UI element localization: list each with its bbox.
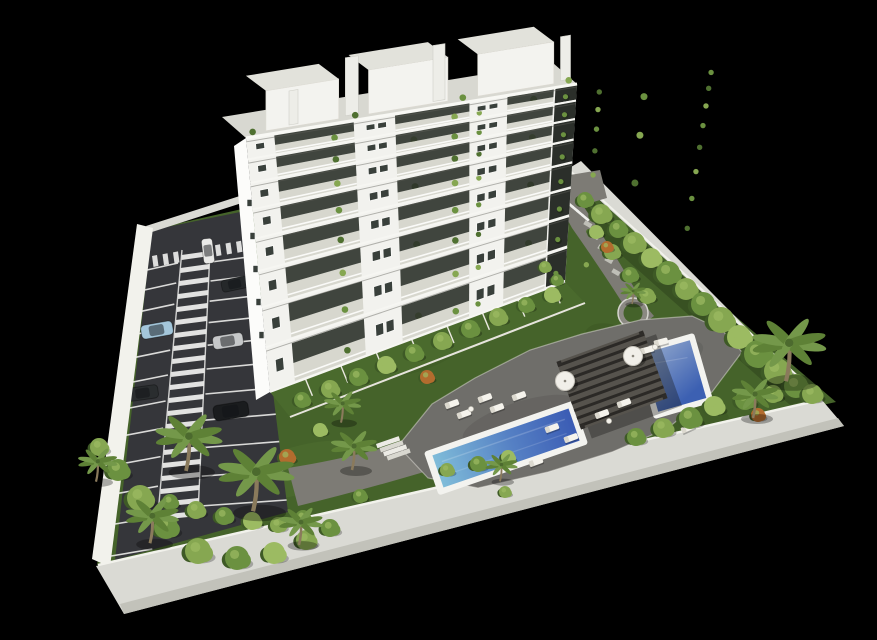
balcony-plant bbox=[595, 107, 600, 112]
palm-shadow bbox=[86, 478, 113, 487]
window bbox=[489, 121, 498, 128]
palm-shadow bbox=[331, 419, 357, 427]
window bbox=[477, 105, 486, 112]
palm-shadow bbox=[492, 479, 514, 486]
window bbox=[384, 281, 392, 294]
window bbox=[378, 122, 387, 129]
chimney bbox=[561, 35, 571, 81]
balcony-plant bbox=[640, 93, 647, 100]
balcony-plant bbox=[476, 265, 481, 270]
window bbox=[477, 124, 486, 131]
bush-highlight bbox=[547, 290, 553, 296]
window bbox=[250, 232, 255, 239]
balcony-plant bbox=[339, 270, 346, 277]
window bbox=[489, 142, 498, 150]
bush-highlight bbox=[356, 491, 361, 496]
balcony-plant bbox=[452, 155, 459, 162]
bush-highlight bbox=[521, 300, 527, 306]
bush-highlight bbox=[230, 550, 239, 559]
bush-highlight bbox=[625, 270, 631, 276]
balcony-plant bbox=[555, 237, 560, 242]
window bbox=[488, 165, 496, 174]
window bbox=[488, 190, 496, 200]
window bbox=[380, 164, 389, 173]
balcony-plant bbox=[476, 202, 481, 207]
balcony-plant bbox=[560, 154, 565, 159]
bush-highlight bbox=[680, 282, 688, 290]
bush-highlight bbox=[631, 431, 638, 438]
balcony-plant bbox=[700, 123, 705, 128]
balcony-plant bbox=[452, 308, 459, 315]
palm-crown bbox=[351, 443, 356, 448]
palm-crown bbox=[500, 463, 504, 467]
palm-shadow bbox=[169, 465, 215, 480]
balcony-plant bbox=[563, 94, 568, 99]
palm-crown bbox=[632, 289, 635, 292]
window bbox=[477, 193, 485, 203]
side-table bbox=[468, 406, 473, 411]
bush-highlight bbox=[443, 465, 448, 470]
balcony-plant bbox=[584, 262, 589, 267]
window bbox=[260, 189, 269, 198]
bush-highlight bbox=[94, 441, 101, 448]
window bbox=[268, 279, 277, 291]
palm-shadow bbox=[741, 414, 773, 424]
roof-terrace-plant bbox=[460, 94, 467, 101]
window bbox=[247, 199, 252, 206]
palm-crown bbox=[785, 339, 793, 347]
window bbox=[371, 219, 380, 229]
balcony-plant bbox=[592, 148, 597, 153]
window bbox=[372, 250, 381, 262]
window bbox=[258, 164, 267, 172]
bush-highlight bbox=[282, 452, 288, 458]
bush-highlight bbox=[604, 243, 609, 248]
balcony-plant bbox=[597, 89, 602, 94]
bush-highlight bbox=[423, 372, 428, 377]
palm-shadow bbox=[233, 505, 286, 522]
window bbox=[489, 103, 498, 110]
bush-highlight bbox=[191, 504, 198, 511]
window bbox=[374, 284, 382, 297]
bush-highlight bbox=[381, 359, 388, 366]
balcony-plant bbox=[336, 207, 343, 214]
window bbox=[367, 144, 376, 152]
bush-highlight bbox=[542, 263, 547, 268]
balcony-plant bbox=[697, 145, 702, 150]
window bbox=[487, 249, 495, 261]
bush-highlight bbox=[645, 251, 653, 259]
side-table bbox=[606, 418, 611, 423]
bush-highlight bbox=[437, 335, 444, 342]
bush-highlight bbox=[595, 207, 603, 215]
bush-highlight bbox=[325, 522, 332, 529]
palm-crown bbox=[298, 520, 303, 525]
bush-highlight bbox=[684, 411, 692, 419]
bush-highlight bbox=[219, 510, 226, 517]
roof-terrace-plant bbox=[249, 129, 256, 136]
palm-crown bbox=[252, 467, 261, 476]
balcony-plant bbox=[703, 103, 708, 108]
bush-highlight bbox=[661, 265, 670, 274]
window bbox=[477, 253, 485, 265]
window bbox=[368, 166, 377, 175]
bush-highlight bbox=[473, 459, 479, 465]
bush-highlight bbox=[613, 223, 620, 230]
window bbox=[477, 221, 485, 232]
bush-highlight bbox=[190, 542, 200, 552]
window bbox=[256, 299, 261, 306]
balcony-plant bbox=[636, 132, 643, 139]
window bbox=[275, 357, 284, 372]
balcony-plant bbox=[334, 180, 341, 187]
palm-shadow bbox=[340, 466, 372, 476]
chimney bbox=[289, 90, 298, 126]
bush-highlight bbox=[732, 329, 741, 338]
balcony-plant bbox=[594, 126, 599, 131]
bush-highlight bbox=[708, 399, 716, 407]
balcony-plant bbox=[689, 196, 694, 201]
palm-crown bbox=[95, 459, 99, 463]
bush-highlight bbox=[325, 383, 332, 390]
balcony-plant bbox=[342, 306, 349, 313]
roof-terrace-plant bbox=[352, 112, 359, 119]
chimney bbox=[345, 56, 358, 116]
window bbox=[369, 191, 378, 200]
balcony-plant bbox=[344, 347, 351, 354]
bush-highlight bbox=[273, 520, 279, 526]
bush-highlight bbox=[628, 236, 636, 244]
palm-shadow bbox=[136, 539, 173, 551]
balcony-plant bbox=[631, 179, 638, 186]
chimney bbox=[433, 44, 445, 102]
bush-highlight bbox=[316, 425, 321, 430]
palm-crown bbox=[752, 391, 757, 396]
bush-highlight bbox=[493, 311, 500, 318]
umbrella-pole bbox=[632, 355, 635, 358]
balcony-plant bbox=[476, 232, 481, 237]
window bbox=[366, 124, 375, 131]
bush-highlight bbox=[409, 347, 416, 354]
window bbox=[379, 142, 388, 150]
balcony-plant bbox=[452, 237, 459, 244]
balcony-plant bbox=[561, 132, 566, 137]
palm-shadow bbox=[625, 302, 643, 308]
bush-highlight bbox=[657, 421, 665, 429]
balcony-plant bbox=[452, 207, 459, 214]
balcony-plant bbox=[590, 172, 595, 177]
balcony-plant bbox=[452, 180, 459, 187]
bush-highlight bbox=[580, 195, 586, 201]
balcony-plant bbox=[562, 112, 567, 117]
window bbox=[262, 216, 271, 226]
palm-crown bbox=[341, 401, 345, 405]
window bbox=[376, 322, 384, 336]
balcony-plant bbox=[452, 271, 459, 278]
balcony-plant bbox=[708, 70, 713, 75]
side-table bbox=[652, 344, 657, 349]
window bbox=[382, 216, 391, 226]
balcony-plant bbox=[333, 156, 340, 163]
bush-highlight bbox=[297, 395, 303, 401]
window bbox=[381, 189, 390, 198]
window bbox=[253, 266, 258, 273]
window bbox=[477, 144, 485, 152]
balcony-plant bbox=[685, 226, 690, 231]
bush-highlight bbox=[465, 323, 472, 330]
bush-highlight bbox=[268, 546, 276, 554]
balcony-plant bbox=[475, 301, 480, 306]
window bbox=[265, 246, 274, 257]
palm-shadow bbox=[288, 541, 318, 551]
window bbox=[477, 167, 485, 176]
window bbox=[383, 247, 391, 259]
bush-highlight bbox=[696, 296, 705, 305]
balcony-plant bbox=[693, 169, 698, 174]
balcony-plant bbox=[706, 86, 711, 91]
architectural-render-canvas bbox=[0, 0, 877, 640]
palm-crown bbox=[149, 513, 155, 519]
palm-crown bbox=[185, 432, 193, 440]
window bbox=[272, 316, 281, 330]
bush-highlight bbox=[554, 276, 559, 281]
window bbox=[386, 319, 394, 333]
bush-highlight bbox=[713, 311, 723, 321]
balcony-plant bbox=[558, 179, 563, 184]
bush-highlight bbox=[353, 371, 360, 378]
balcony-plant bbox=[337, 237, 344, 244]
bush-highlight bbox=[132, 489, 142, 499]
umbrella-pole bbox=[564, 380, 567, 383]
balcony-plant bbox=[557, 206, 562, 211]
window bbox=[259, 332, 264, 339]
bush-highlight bbox=[502, 488, 507, 493]
roof-terrace-plant bbox=[565, 77, 572, 84]
bush-highlight bbox=[592, 227, 597, 232]
window bbox=[256, 142, 265, 149]
render-scene bbox=[0, 0, 877, 640]
